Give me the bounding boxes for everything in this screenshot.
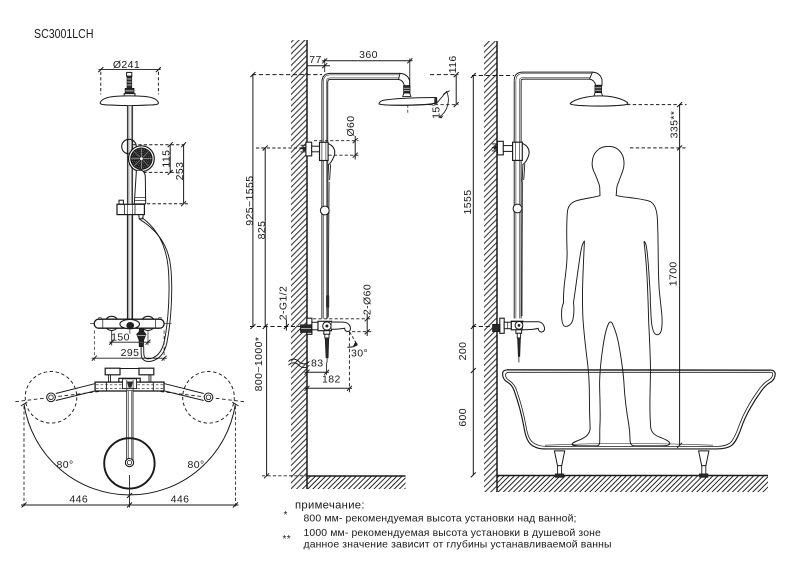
svg-text:83: 83 — [311, 358, 323, 370]
svg-text:115: 115 — [160, 150, 172, 168]
svg-text:*: * — [284, 510, 288, 521]
svg-text:200: 200 — [457, 342, 469, 361]
svg-text:295: 295 — [121, 347, 140, 359]
svg-text:925~1555: 925~1555 — [244, 175, 256, 225]
svg-text:15°: 15° — [431, 102, 443, 119]
svg-text:2-G1/2: 2-G1/2 — [278, 286, 290, 321]
svg-text:335**: 335** — [668, 111, 680, 139]
svg-text:446: 446 — [171, 494, 190, 506]
svg-text:1700: 1700 — [667, 261, 679, 286]
svg-text:SC3001LCH: SC3001LCH — [34, 26, 94, 41]
svg-text:800 мм- рекомендуемая высота у: 800 мм- рекомендуемая высота установки н… — [304, 514, 577, 525]
svg-text:30°: 30° — [351, 348, 368, 360]
svg-text:1000 мм- рекомендуемая высота: 1000 мм- рекомендуемая высота установки … — [304, 528, 602, 539]
svg-text:800~1000*: 800~1000* — [253, 337, 265, 392]
svg-text:253: 253 — [174, 162, 186, 181]
svg-text:446: 446 — [69, 494, 88, 506]
svg-text:77: 77 — [309, 54, 321, 66]
svg-text:данное значение зависит от глу: данное значение зависит от глубины устан… — [304, 539, 612, 551]
svg-text:182: 182 — [322, 374, 341, 386]
svg-text:80°: 80° — [57, 459, 74, 471]
svg-text:360: 360 — [359, 49, 378, 61]
svg-text:600: 600 — [457, 408, 469, 427]
svg-text:80°: 80° — [188, 459, 205, 471]
svg-text:150: 150 — [111, 332, 130, 344]
svg-text:примечание:: примечание: — [295, 500, 365, 512]
svg-text:2-Ø60: 2-Ø60 — [361, 284, 373, 315]
svg-text:825: 825 — [256, 221, 268, 240]
svg-text:Ø60: Ø60 — [345, 115, 357, 136]
svg-text:**: ** — [283, 534, 291, 545]
svg-text:116: 116 — [447, 55, 459, 73]
svg-text:1555: 1555 — [462, 190, 474, 215]
